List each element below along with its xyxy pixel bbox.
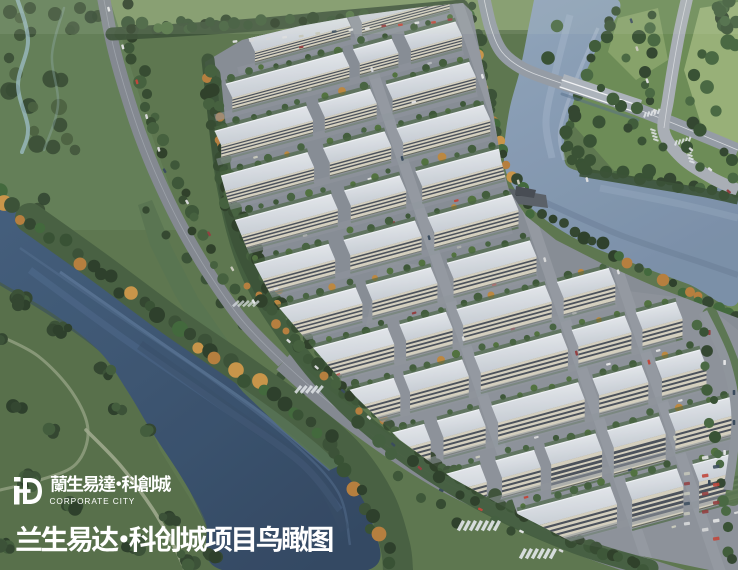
svg-text:CORPORATE CITY: CORPORATE CITY — [50, 496, 136, 506]
